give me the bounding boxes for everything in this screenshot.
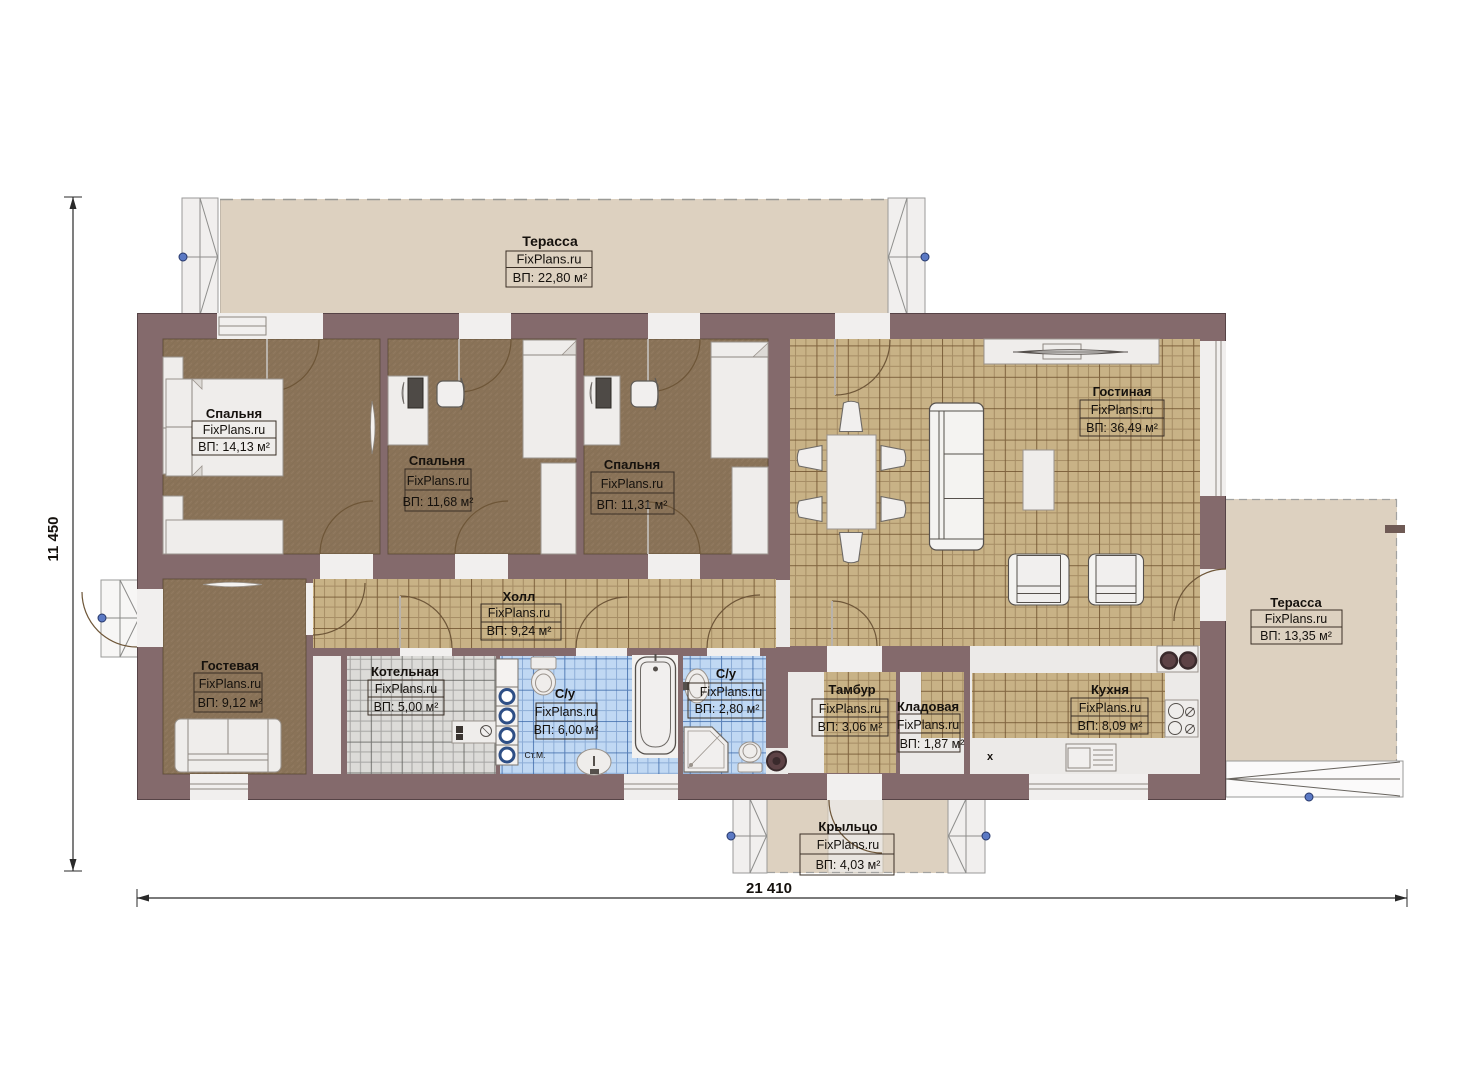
svg-text:FixPlans.ru: FixPlans.ru	[817, 838, 880, 852]
svg-text:FixPlans.ru: FixPlans.ru	[819, 702, 882, 716]
svg-text:Тамбур: Тамбур	[828, 682, 875, 697]
svg-text:Спальня: Спальня	[409, 453, 465, 468]
svg-text:ВП: 5,00 м²: ВП: 5,00 м²	[374, 700, 439, 714]
svg-text:21 410: 21 410	[746, 880, 792, 897]
svg-text:Кухня: Кухня	[1091, 682, 1129, 697]
svg-text:Терасса: Терасса	[522, 233, 578, 249]
svg-text:FixPlans.ru: FixPlans.ru	[407, 474, 470, 488]
svg-text:11 450: 11 450	[45, 516, 62, 561]
svg-text:ВП: 3,06 м²: ВП: 3,06 м²	[818, 720, 883, 734]
svg-text:ВП: 11,68 м²: ВП: 11,68 м²	[403, 495, 474, 509]
svg-text:ВП: 2,80 м²: ВП: 2,80 м²	[695, 702, 760, 716]
svg-text:FixPlans.ru: FixPlans.ru	[488, 606, 551, 620]
svg-text:FixPlans.ru: FixPlans.ru	[897, 718, 960, 732]
svg-text:FixPlans.ru: FixPlans.ru	[199, 677, 262, 691]
svg-text:Гостевая: Гостевая	[201, 658, 259, 673]
svg-text:Спальня: Спальня	[604, 457, 660, 472]
svg-text:ВП: 36,49 м²: ВП: 36,49 м²	[1086, 421, 1158, 435]
svg-text:Котельная: Котельная	[371, 664, 439, 679]
svg-text:Крыльцо: Крыльцо	[818, 819, 877, 834]
svg-text:FixPlans.ru: FixPlans.ru	[203, 423, 266, 437]
svg-text:FixPlans.ru: FixPlans.ru	[1265, 612, 1328, 626]
svg-text:FixPlans.ru: FixPlans.ru	[1091, 403, 1154, 417]
svg-text:Холл: Холл	[503, 589, 536, 604]
svg-text:Спальня: Спальня	[206, 406, 262, 421]
svg-text:FixPlans.ru: FixPlans.ru	[516, 252, 581, 267]
svg-text:ВП: 6,00 м²: ВП: 6,00 м²	[534, 723, 599, 737]
svg-text:ВП: 9,24 м²: ВП: 9,24 м²	[487, 624, 552, 638]
svg-text:Кладовая: Кладовая	[897, 699, 959, 714]
svg-text:Терасса: Терасса	[1270, 595, 1322, 610]
svg-text:FixPlans.ru: FixPlans.ru	[700, 685, 763, 699]
svg-text:x: x	[987, 751, 994, 763]
svg-text:ВП: 4,03 м²: ВП: 4,03 м²	[816, 858, 881, 872]
svg-text:ВП: 14,13 м²: ВП: 14,13 м²	[198, 440, 270, 454]
svg-text:FixPlans.ru: FixPlans.ru	[535, 705, 598, 719]
svg-text:ВП: 22,80 м²: ВП: 22,80 м²	[513, 270, 588, 285]
svg-text:FixPlans.ru: FixPlans.ru	[375, 682, 438, 696]
svg-text:Гостиная: Гостиная	[1093, 384, 1152, 399]
svg-text:Ст.М.: Ст.М.	[525, 750, 546, 760]
svg-text:С/у: С/у	[555, 686, 576, 701]
svg-text:ВП: 1,87 м²: ВП: 1,87 м²	[900, 737, 965, 751]
svg-text:ВП: 11,31 м²: ВП: 11,31 м²	[597, 498, 668, 512]
svg-text:ВП: 13,35 м²: ВП: 13,35 м²	[1260, 629, 1332, 643]
svg-text:FixPlans.ru: FixPlans.ru	[1079, 701, 1142, 715]
svg-text:ВП: 9,12 м²: ВП: 9,12 м²	[198, 696, 263, 710]
svg-text:FixPlans.ru: FixPlans.ru	[601, 477, 664, 491]
svg-text:С/у: С/у	[716, 666, 737, 681]
svg-text:ВП: 8,09 м²: ВП: 8,09 м²	[1078, 719, 1143, 733]
